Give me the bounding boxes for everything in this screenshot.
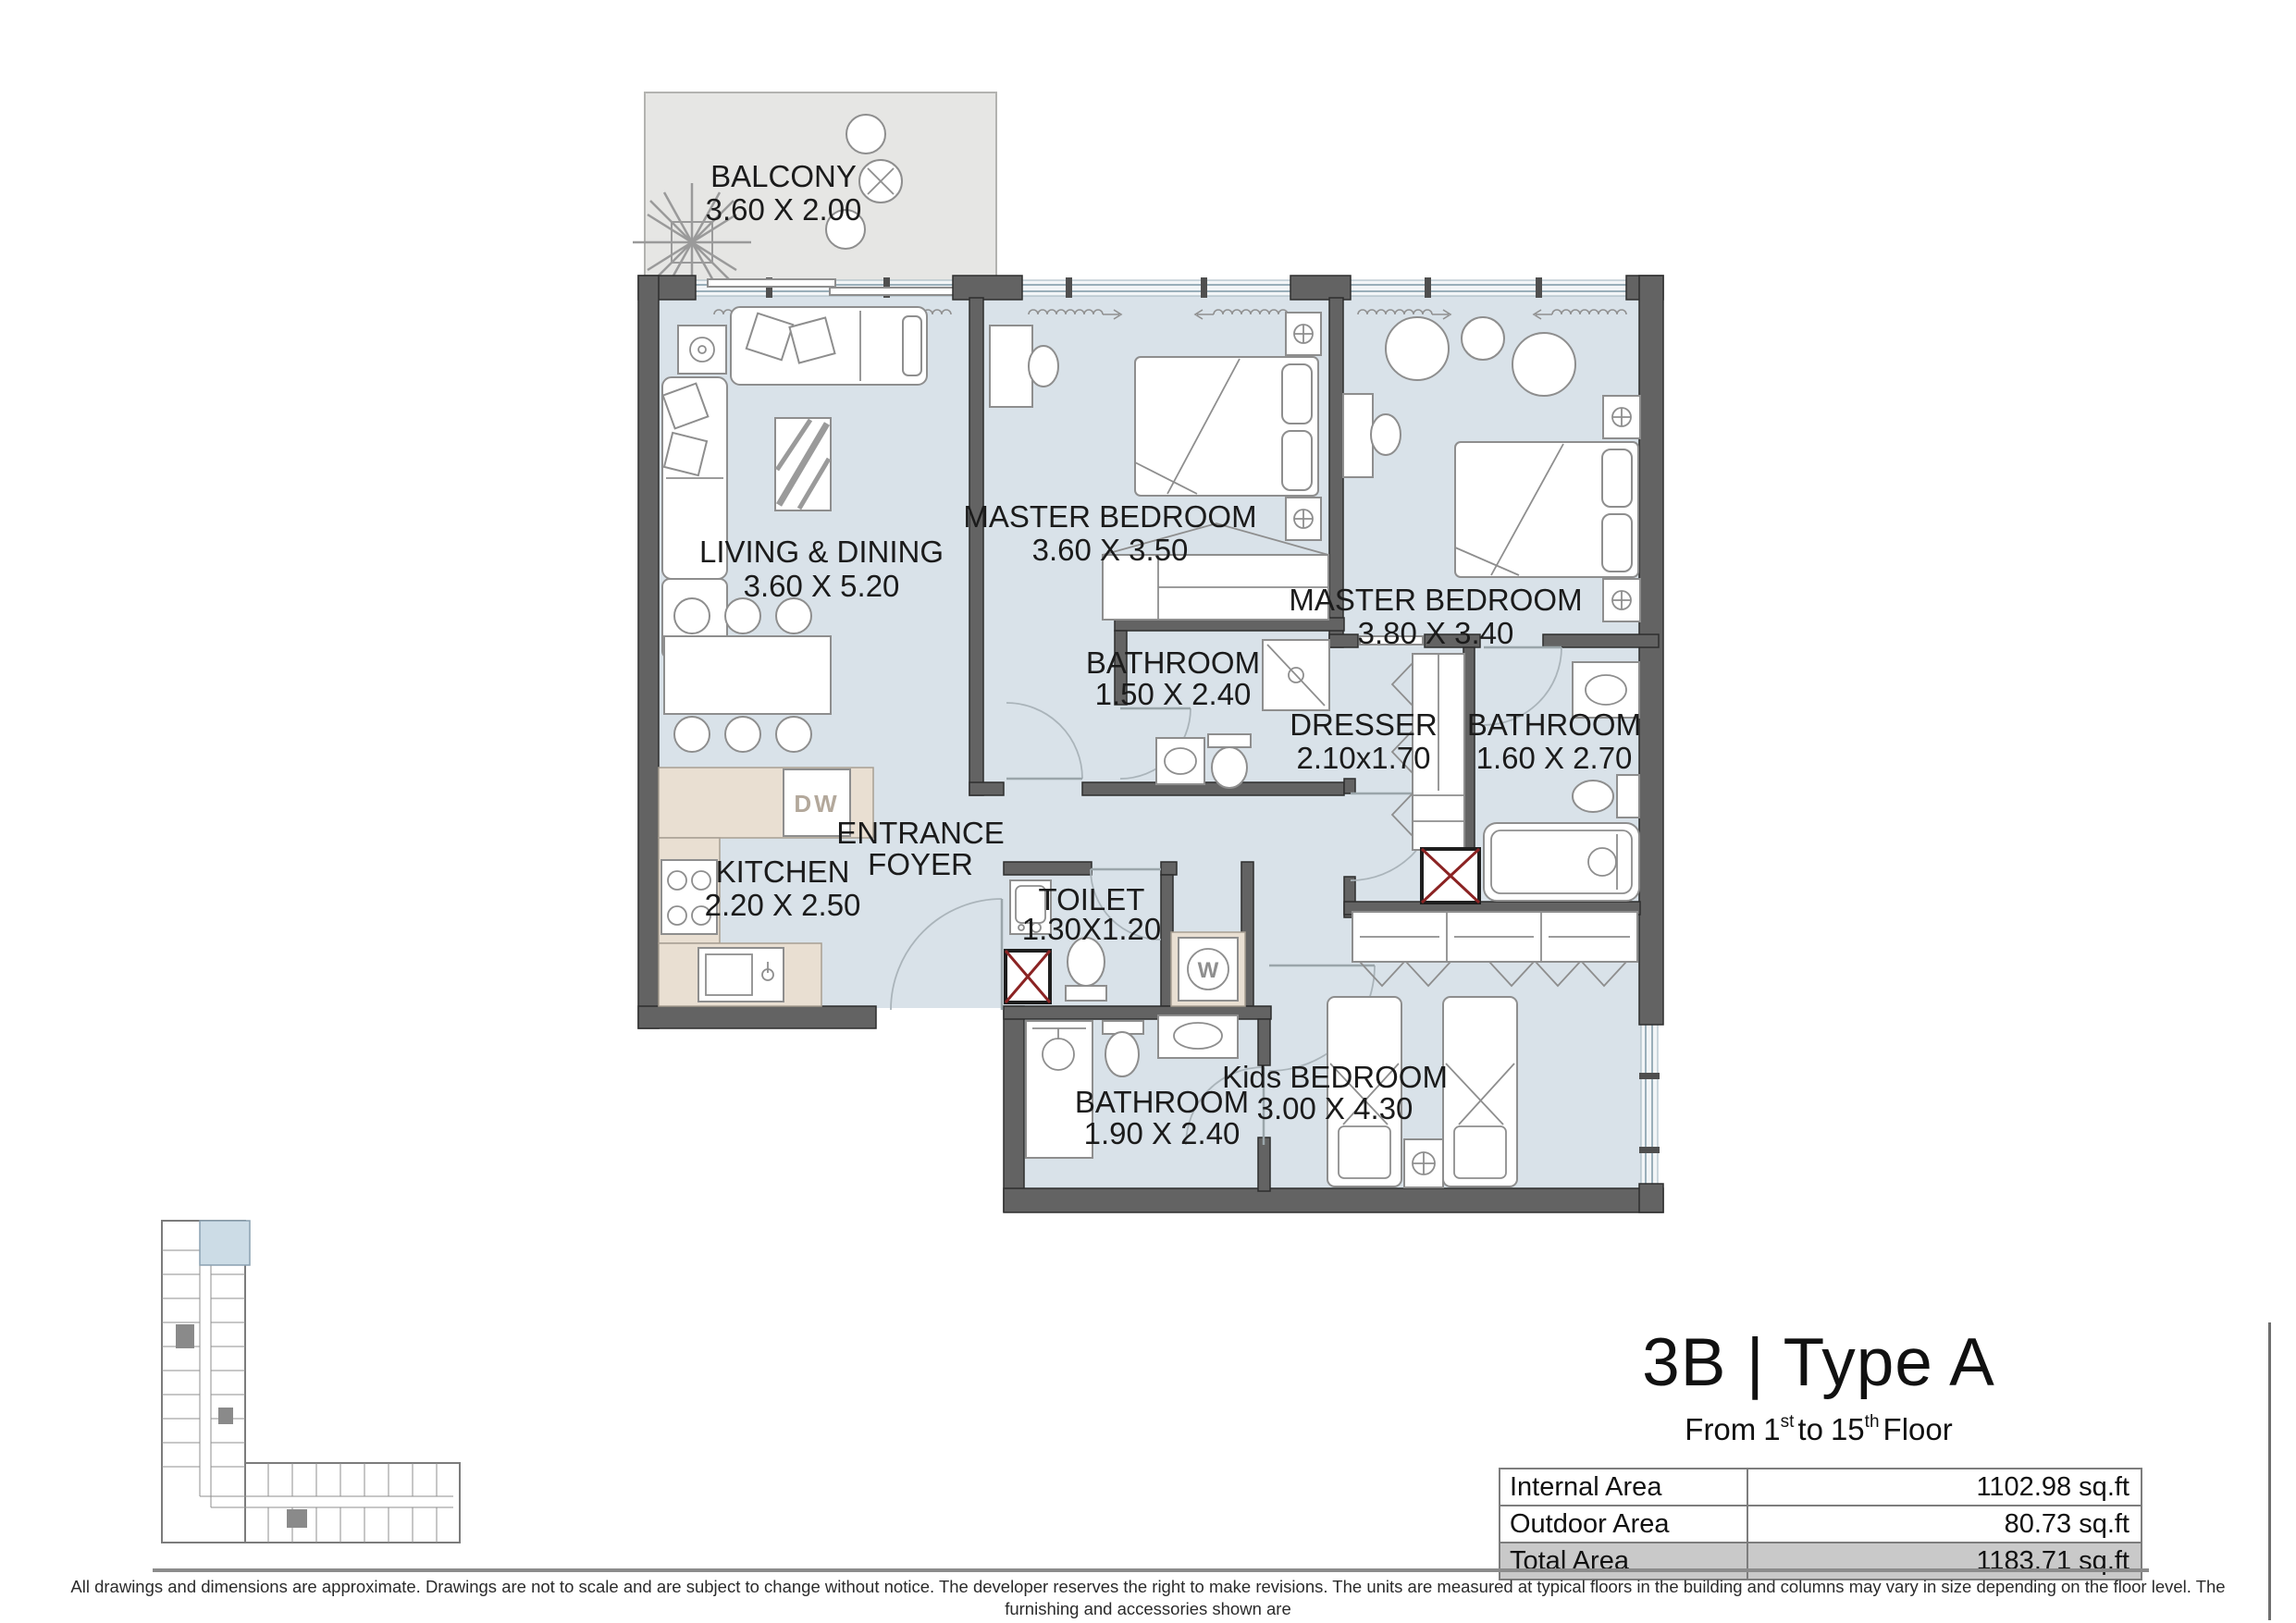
key-plan-core-1: [176, 1324, 194, 1348]
window-band-right: [1639, 1023, 1660, 1186]
subtitle-floor-1: 1: [1763, 1412, 1780, 1446]
master1-dims: 3.60 X 3.50: [1032, 533, 1189, 567]
total-area-label: Total Area: [1500, 1543, 1748, 1579]
washer-label: W: [1198, 958, 1219, 983]
unit-type-title: 3B | Type A: [1499, 1324, 2139, 1401]
subtitle-to: to: [1797, 1412, 1823, 1446]
area-table-row-total: Total Area 1183.71 sq.ft: [1500, 1542, 2141, 1579]
window-band-top: [648, 277, 1656, 298]
floor-range-subtitle: From1stto15thFloor: [1499, 1412, 2139, 1447]
disclaimer-line-2: for representation only. The availabilit…: [56, 1619, 2240, 1623]
foyer-label-line1: ENTRANCE: [836, 816, 1005, 850]
toilet-dims: 1.30X1.20: [1022, 912, 1161, 946]
bath1-dims: 1.50 X 2.40: [1095, 677, 1252, 711]
outdoor-area-label: Outdoor Area: [1500, 1506, 1748, 1542]
key-plan-highlighted-unit: [200, 1221, 250, 1265]
kitchen-label: KITCHEN: [716, 855, 850, 889]
title-block: 3B | Type A From1stto15thFloor Internal …: [1499, 1324, 2139, 1580]
subtitle-floor-word: Floor: [1883, 1412, 1953, 1446]
living-room-dims: 3.60 X 5.20: [744, 569, 900, 603]
dining-table: [664, 636, 831, 714]
disclaimer-line-1: All drawings and dimensions are approxim…: [56, 1576, 2240, 1619]
outdoor-area-value: 80.73 sq.ft: [1748, 1506, 2141, 1542]
footer-divider: [153, 1568, 2149, 1572]
subtitle-sup-1: st: [1781, 1412, 1795, 1432]
key-plan-core-3: [287, 1509, 307, 1528]
internal-area-label: Internal Area: [1500, 1469, 1748, 1505]
subtitle-sup-2: th: [1865, 1412, 1880, 1432]
bath3-dims: 1.90 X 2.40: [1084, 1116, 1241, 1150]
kids-room-dims: 3.00 X 4.30: [1257, 1091, 1413, 1125]
dishwasher-label: DW: [794, 790, 839, 818]
area-table: Internal Area 1102.98 sq.ft Outdoor Area…: [1499, 1468, 2142, 1580]
master1-label: MASTER BEDROOM: [963, 499, 1256, 534]
key-plan: [139, 1213, 481, 1565]
balcony-area: BALCONY 3.60 X 2.00: [633, 92, 996, 301]
floorplan-page: BALCONY 3.60 X 2.00: [0, 0, 2296, 1623]
internal-area-value: 1102.98 sq.ft: [1748, 1469, 2141, 1505]
master2-dims: 3.80 X 3.40: [1358, 616, 1514, 650]
subtitle-from: From: [1685, 1412, 1756, 1446]
disclaimer-text: All drawings and dimensions are approxim…: [56, 1576, 2240, 1623]
balcony-label: BALCONY: [710, 159, 857, 193]
living-room-label: LIVING & DINING: [699, 535, 944, 569]
bath2-dims: 1.60 X 2.70: [1476, 741, 1633, 775]
key-plan-core-2: [218, 1408, 233, 1424]
dresser-label: DRESSER: [1290, 707, 1438, 742]
bath2-label: BATHROOM: [1467, 707, 1641, 742]
total-area-value: 1183.71 sq.ft: [1748, 1543, 2141, 1579]
kids-room-label: Kids BEDROOM: [1222, 1060, 1448, 1094]
sheet-edge-line: [2268, 1322, 2271, 1620]
foyer-label-line2: FOYER: [868, 847, 973, 881]
kitchen-dims: 2.20 X 2.50: [705, 888, 861, 922]
dresser-dims: 2.10x1.70: [1297, 741, 1431, 775]
area-table-row-outdoor: Outdoor Area 80.73 sq.ft: [1500, 1505, 2141, 1542]
area-table-row-internal: Internal Area 1102.98 sq.ft: [1500, 1469, 2141, 1505]
subtitle-floor-2: 15: [1831, 1412, 1865, 1446]
master2-label: MASTER BEDROOM: [1289, 583, 1582, 617]
bath1-label: BATHROOM: [1086, 646, 1260, 680]
kitchen-sink: [698, 948, 784, 1002]
balcony-dims: 3.60 X 2.00: [706, 192, 862, 227]
washer: W: [1171, 932, 1245, 1006]
